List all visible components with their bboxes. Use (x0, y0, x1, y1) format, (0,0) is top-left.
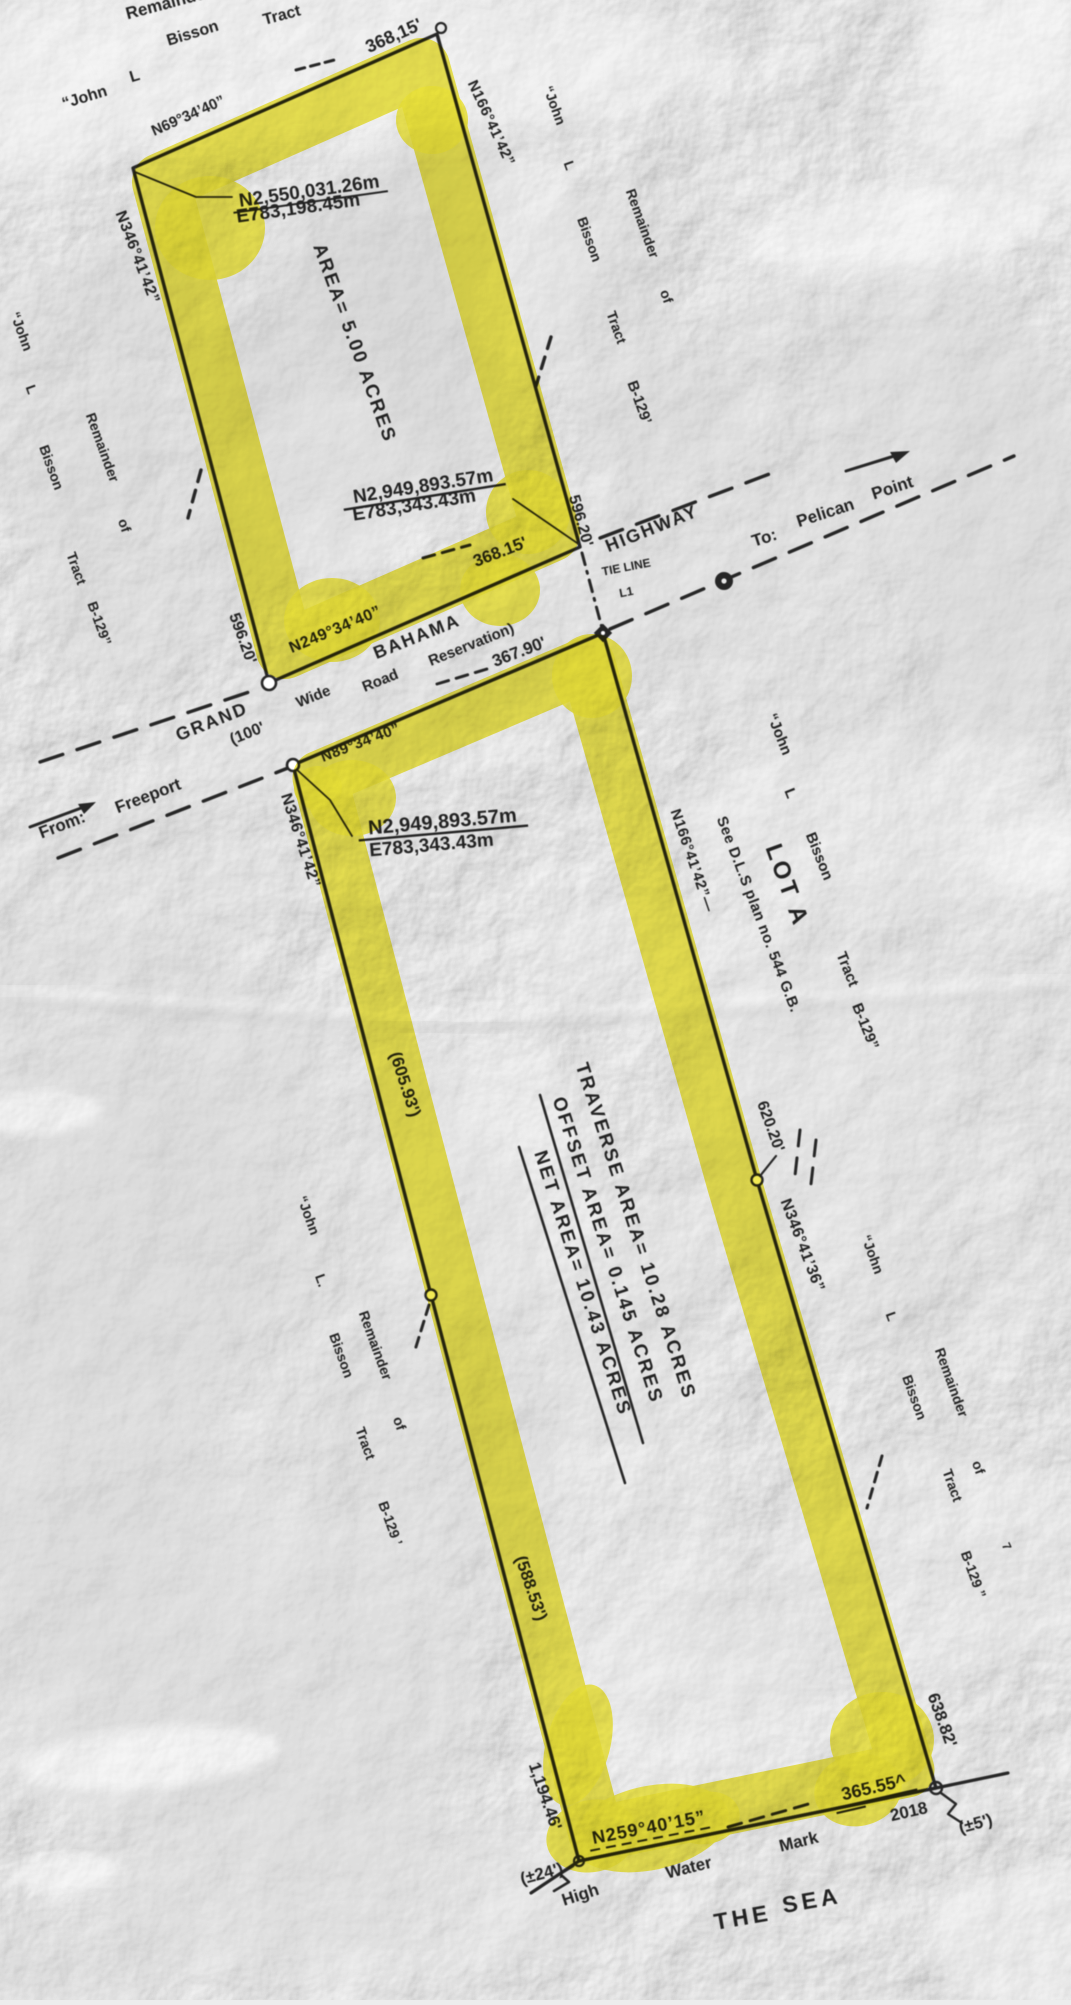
svg-text:L1: L1 (618, 584, 635, 600)
